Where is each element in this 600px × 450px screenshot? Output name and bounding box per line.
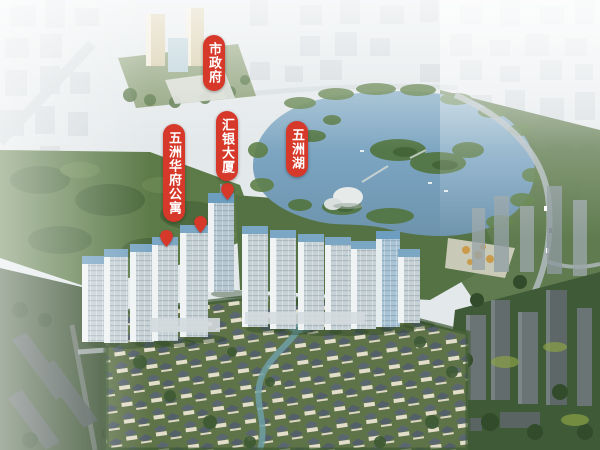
map-pin-icon	[160, 230, 173, 247]
label-wuzhou-lake: 五洲湖	[286, 121, 308, 177]
aerial-rendering	[0, 0, 600, 450]
map-pin-icon	[221, 183, 234, 200]
haze-top-right	[440, 0, 600, 240]
label-huafu-apartments: 五洲华府公寓	[163, 124, 185, 222]
scene-container: 市政府 汇银大厦 五洲湖 五洲华府公寓	[0, 0, 600, 450]
label-huiyin-tower: 汇银大厦	[216, 111, 238, 181]
label-city-hall: 市政府	[203, 35, 225, 91]
haze-left	[0, 0, 150, 450]
map-pin-icon	[194, 216, 207, 233]
